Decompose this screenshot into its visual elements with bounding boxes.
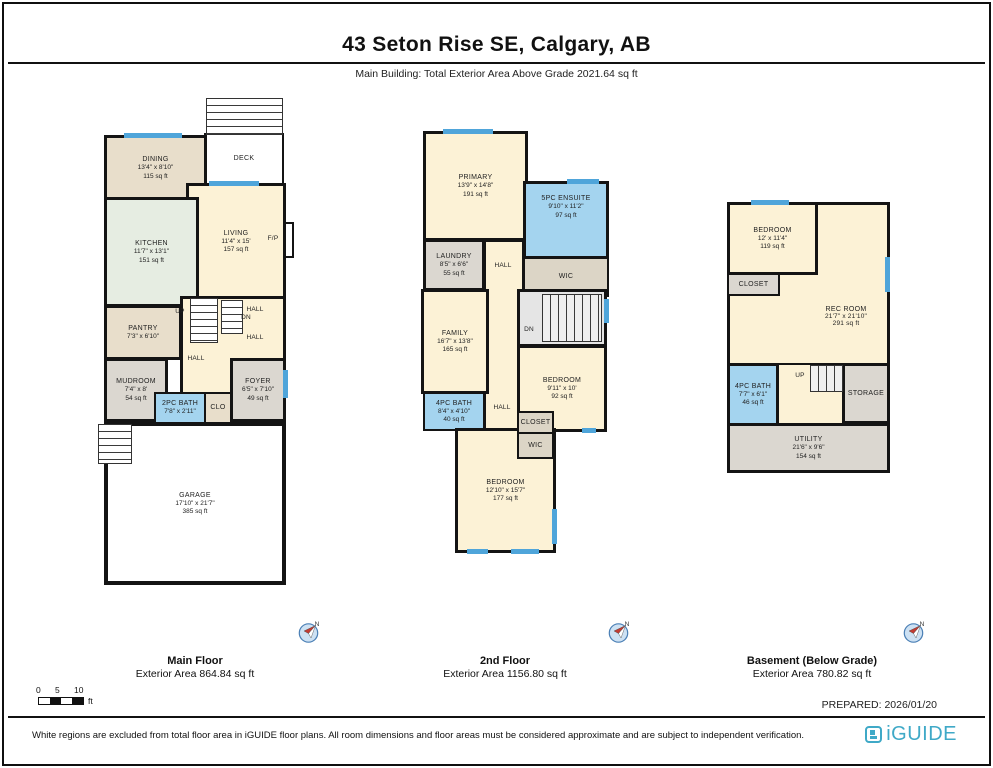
room-laundry: LAUNDRY 8'5" x 6'6" 55 sq ft: [423, 239, 485, 291]
page-title: 43 Seton Rise SE, Calgary, AB: [0, 33, 993, 57]
page-subtitle: Main Building: Total Exterior Area Above…: [0, 68, 993, 80]
hall-lower-label: HALL: [487, 404, 517, 411]
stairs-dn-2f: [542, 294, 602, 342]
scale-bar-segments: [38, 697, 84, 705]
floorplan-sheet: 43 Seton Rise SE, Calgary, AB Main Build…: [0, 0, 993, 768]
hall-small-label: HALL: [242, 306, 268, 313]
room-ensuite: 5PC ENSUITE 9'10" x 11'2" 97 sq ft: [523, 181, 609, 259]
window-mark: [885, 257, 890, 292]
iguide-logo-text: iGUIDE: [886, 723, 957, 746]
compass-icon: N: [902, 619, 928, 645]
dn-label: DN: [238, 314, 254, 321]
caption-basement: Basement (Below Grade) Exterior Area 780…: [727, 655, 897, 680]
scale-bar: 0 5 10 ft: [36, 685, 106, 711]
room-2pc-bath: 2PC BATH 7'8" x 2'11": [154, 392, 206, 424]
disclaimer-text: White regions are excluded from total fl…: [32, 730, 804, 741]
room-foyer: FOYER 6'5" x 7'10" 49 sq ft: [230, 358, 286, 422]
room-wic-bottom: WIC: [517, 432, 554, 459]
iguide-logo: iGUIDE: [865, 723, 957, 746]
window-mark: [582, 428, 596, 433]
window-mark: [443, 129, 493, 134]
room-storage: STORAGE: [842, 363, 890, 424]
window-mark: [124, 133, 182, 138]
room-closet-bsmt: CLOSET: [727, 273, 780, 296]
svg-text:N: N: [315, 621, 320, 628]
fireplace-box: [284, 222, 294, 258]
front-door-mark: [283, 370, 288, 398]
iguide-logo-icon: [865, 726, 882, 743]
room-utility: UTILITY 21'6" x 9'6" 154 sq ft: [727, 423, 890, 473]
up-label: UP: [172, 308, 188, 315]
deck-stairs: [206, 98, 283, 135]
up-bsmt-label: UP: [792, 372, 808, 379]
hall-small-label: HALL: [242, 334, 268, 341]
window-mark: [552, 509, 557, 544]
room-bedroom-bsmt: BEDROOM 12' x 11'4" 119 sq ft: [727, 202, 818, 275]
footer-divider: [8, 716, 985, 718]
room-primary: PRIMARY 13'9" x 14'8" 191 sq ft: [423, 131, 528, 241]
compass-icon: N: [297, 619, 323, 645]
stairs-up-main: [190, 298, 218, 343]
hall-upper-label: HALL: [488, 262, 518, 269]
stairs-dn-2f-area: [517, 289, 607, 347]
svg-text:N: N: [625, 621, 630, 628]
window-mark: [209, 181, 259, 186]
compass-icon: N: [607, 619, 633, 645]
room-deck: DECK: [204, 133, 284, 185]
exterior-stairs: [98, 424, 132, 464]
room-kitchen: KITCHEN 11'7" x 13'1" 151 sq ft: [104, 197, 199, 307]
svg-text:N: N: [920, 621, 925, 628]
fireplace-label: F/P: [264, 235, 282, 242]
prepared-date: PREPARED: 2026/01/20: [822, 699, 937, 711]
room-4pc-bath-2f: 4PC BATH 8'4" x 4'10" 40 sq ft: [423, 392, 485, 431]
rec-room-label: REC ROOM 21'7" x 21'10" 291 sq ft: [796, 306, 896, 327]
window-mark: [751, 200, 789, 205]
caption-main-floor: Main Floor Exterior Area 864.84 sq ft: [110, 655, 280, 680]
room-closet-main: CLO: [204, 392, 232, 424]
room-pantry: PANTRY 7'3" x 6'10": [104, 305, 182, 360]
window-mark: [567, 179, 599, 184]
room-family: FAMILY 16'7" x 13'8" 165 sq ft: [421, 289, 489, 394]
room-4pc-bath-bsmt: 4PC BATH 7'7" x 6'1" 46 sq ft: [727, 363, 779, 426]
dn-2f-label: DN: [521, 326, 537, 333]
window-mark: [604, 299, 609, 323]
window-mark: [467, 549, 488, 554]
caption-second-floor: 2nd Floor Exterior Area 1156.80 sq ft: [420, 655, 590, 680]
stairs-up-bsmt: [810, 365, 843, 392]
title-divider: [8, 62, 985, 64]
hall-label: HALL: [178, 355, 214, 362]
room-closet-2f: CLOSET: [517, 411, 554, 434]
window-mark: [511, 549, 539, 554]
